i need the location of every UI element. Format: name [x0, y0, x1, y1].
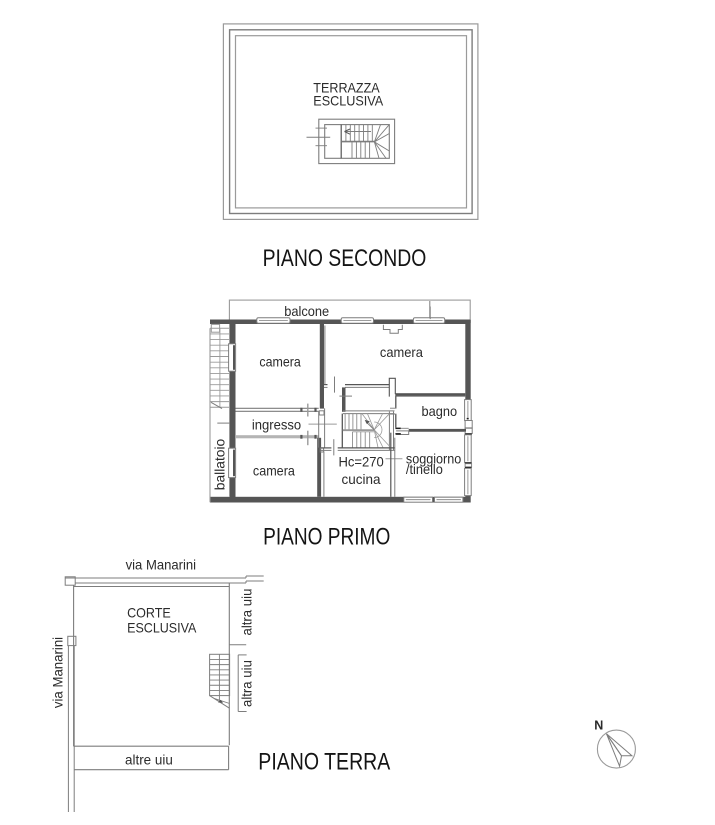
svg-text:balcone: balcone	[284, 303, 329, 319]
svg-text:PIANO PRIMO: PIANO PRIMO	[263, 524, 390, 551]
svg-text:altra uiu: altra uiu	[239, 589, 255, 636]
svg-text:ingresso: ingresso	[252, 416, 301, 432]
svg-text:camera: camera	[380, 344, 423, 360]
svg-text:altre uiu: altre uiu	[125, 752, 173, 768]
svg-text:altra uiu: altra uiu	[239, 660, 255, 707]
svg-text:camera: camera	[259, 354, 301, 370]
svg-text:/tinello: /tinello	[406, 461, 443, 477]
svg-text:cucina: cucina	[342, 471, 381, 487]
svg-text:camera: camera	[253, 462, 295, 478]
svg-text:via Manarini: via Manarini	[50, 637, 66, 708]
svg-text:ESCLUSIVA: ESCLUSIVA	[127, 620, 197, 636]
svg-text:ballatoio: ballatoio	[212, 439, 228, 491]
svg-text:Hc=270: Hc=270	[339, 453, 384, 469]
svg-text:PIANO TERRA: PIANO TERRA	[258, 749, 390, 776]
svg-text:CORTE: CORTE	[127, 604, 171, 620]
svg-text:PIANO SECONDO: PIANO SECONDO	[263, 245, 427, 272]
svg-text:N: N	[594, 719, 603, 733]
svg-text:via Manarini: via Manarini	[126, 557, 197, 573]
svg-text:bagno: bagno	[422, 403, 458, 419]
svg-text:ESCLUSIVA: ESCLUSIVA	[313, 93, 383, 109]
